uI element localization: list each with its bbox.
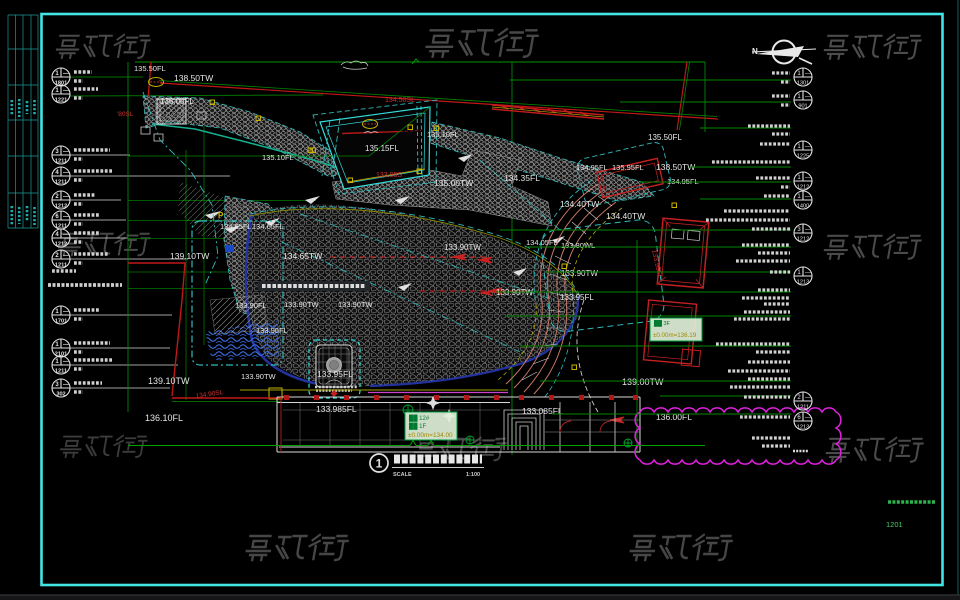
svg-text:±0.00m=134.00: ±0.00m=134.00	[408, 432, 453, 439]
svg-text:133.95S: 133.95S	[376, 172, 402, 179]
svg-text:135.95FL: 135.95FL	[612, 163, 644, 172]
svg-text:134.65FL: 134.65FL	[252, 222, 284, 231]
svg-text:134.95FL: 134.95FL	[667, 177, 699, 186]
svg-text:—: —	[63, 309, 69, 315]
svg-text:1211: 1211	[55, 224, 67, 230]
svg-text:—: —	[63, 194, 69, 200]
svg-text:901: 901	[798, 104, 807, 110]
svg-text:—: —	[805, 227, 811, 233]
svg-text:1212: 1212	[797, 185, 809, 191]
svg-text:133.085FL: 133.085FL	[522, 406, 563, 416]
svg-text:—: —	[805, 144, 811, 150]
svg-text:134.50SL: 134.50SL	[385, 97, 415, 104]
svg-text:1212: 1212	[797, 237, 809, 243]
svg-text:134.65FL: 134.65FL	[220, 222, 252, 231]
svg-text:1301: 1301	[797, 81, 809, 87]
svg-text:1213: 1213	[797, 280, 809, 286]
svg-text:—: —	[805, 71, 811, 77]
svg-text:'80SL: '80SL	[117, 111, 134, 118]
svg-text:133.95FL: 133.95FL	[317, 369, 353, 379]
svg-text:1211: 1211	[55, 369, 67, 375]
svg-text:SCALE: SCALE	[393, 472, 412, 478]
svg-text:P: P	[218, 211, 224, 220]
svg-text:1211: 1211	[55, 263, 67, 269]
svg-text:1701: 1701	[55, 319, 67, 325]
svg-text:135.50FL: 135.50FL	[134, 64, 166, 73]
svg-text:██ 12#: ██ 12#	[409, 414, 430, 422]
svg-text:1211: 1211	[55, 159, 67, 165]
svg-text:—: —	[63, 149, 69, 155]
svg-text:—: —	[805, 415, 811, 421]
svg-text:—: —	[63, 342, 69, 348]
svg-text:—: —	[63, 382, 69, 388]
svg-text:1211: 1211	[797, 405, 809, 411]
svg-text:—: —	[805, 270, 811, 276]
svg-text:1211: 1211	[55, 180, 67, 186]
svg-text:—: —	[63, 71, 69, 77]
svg-text:135.50FL: 135.50FL	[648, 133, 682, 142]
svg-text:139.00TW: 139.00TW	[622, 377, 664, 387]
svg-text:133.90TW: 133.90TW	[338, 300, 374, 309]
svg-text:133.80WL: 133.80WL	[561, 241, 595, 250]
svg-text:N: N	[752, 47, 758, 56]
svg-text:—: —	[63, 88, 69, 94]
svg-text:133.90TW: 133.90TW	[241, 372, 277, 381]
svg-text:1213: 1213	[797, 425, 809, 431]
svg-text:1801: 1801	[55, 81, 67, 87]
svg-text:1221: 1221	[55, 98, 67, 104]
svg-text:1:100: 1:100	[466, 472, 480, 478]
svg-text:136.00FL: 136.00FL	[656, 412, 692, 422]
svg-text:133.95FL: 133.95FL	[560, 293, 594, 302]
svg-text:1212: 1212	[55, 242, 67, 248]
svg-text:139.10TW: 139.10TW	[148, 376, 190, 386]
svg-text:135.10FL: 135.10FL	[427, 130, 459, 139]
svg-text:—: —	[805, 94, 811, 100]
svg-text:██ 3F: ██ 3F	[654, 319, 671, 327]
svg-text:1225: 1225	[797, 154, 809, 160]
svg-text:133.90TW: 133.90TW	[284, 300, 320, 309]
svg-text:1400: 1400	[797, 204, 809, 210]
svg-text:—: —	[805, 175, 811, 181]
svg-text:135.15FL: 135.15FL	[365, 144, 399, 153]
svg-text:134.05FL: 134.05FL	[526, 238, 558, 247]
svg-text:—: —	[63, 359, 69, 365]
svg-text:—: —	[805, 395, 811, 401]
svg-text:136.00FL: 136.00FL	[160, 97, 194, 106]
svg-text:1212: 1212	[55, 204, 67, 210]
svg-text:136.10FL: 136.10FL	[145, 413, 183, 423]
svg-text:138.50TW: 138.50TW	[656, 162, 695, 172]
svg-text:133.90TW: 133.90TW	[444, 243, 481, 252]
svg-text:—: —	[63, 232, 69, 238]
svg-text:133.90TW: 133.90TW	[561, 269, 598, 278]
svg-text:133.90FL: 133.90FL	[235, 301, 267, 310]
svg-text:134.40TW: 134.40TW	[606, 211, 645, 221]
svg-text:1: 1	[376, 457, 383, 471]
svg-text:133.985FL: 133.985FL	[316, 404, 357, 414]
svg-text:134.65TW: 134.65TW	[283, 251, 322, 261]
svg-text:302: 302	[56, 392, 65, 398]
svg-text:—: —	[63, 214, 69, 220]
svg-text:139.10TW: 139.10TW	[170, 251, 209, 261]
svg-text:2101: 2101	[55, 352, 67, 358]
svg-text:133.90TW: 133.90TW	[496, 288, 533, 297]
svg-text:—: —	[63, 170, 69, 176]
svg-text:134.35FL: 134.35FL	[504, 173, 540, 183]
svg-text:—: —	[805, 194, 811, 200]
svg-text:██ 1F: ██ 1F	[409, 422, 427, 430]
svg-text:—: —	[63, 253, 69, 259]
svg-text:±0.00m=136.19: ±0.00m=136.19	[653, 332, 697, 339]
svg-text:135.00TW: 135.00TW	[434, 178, 473, 188]
svg-text:133.90FL: 133.90FL	[256, 326, 288, 335]
svg-text:138.50TW: 138.50TW	[174, 73, 213, 83]
svg-text:1201: 1201	[886, 520, 903, 529]
svg-text:135.10FL: 135.10FL	[262, 153, 294, 162]
svg-text:134.95FL: 134.95FL	[576, 163, 608, 172]
svg-text:134.40TW: 134.40TW	[560, 199, 599, 209]
